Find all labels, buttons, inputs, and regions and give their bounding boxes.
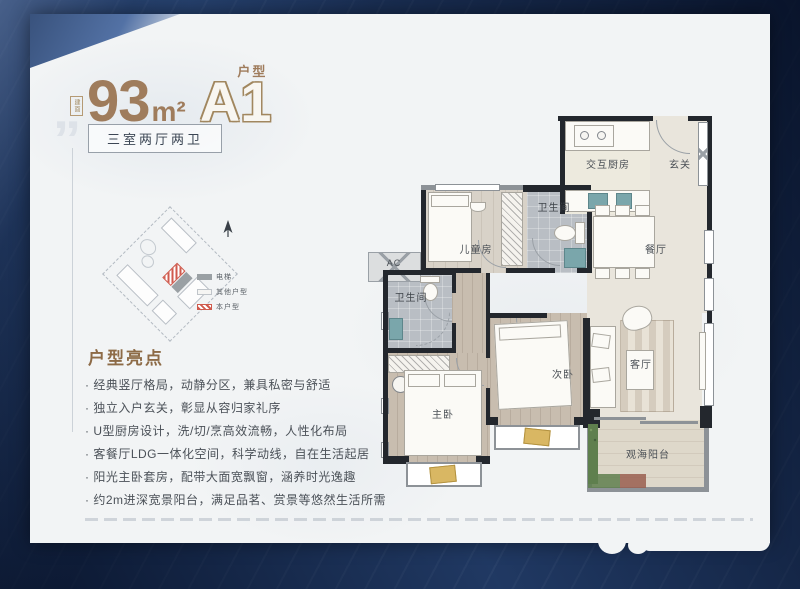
paper-edge-bubble xyxy=(650,532,664,546)
legend-label: 本户型 xyxy=(216,302,240,312)
bay-cushion xyxy=(429,465,457,485)
highlight-item: 独立入户玄关，彰显从容归家礼序 xyxy=(85,397,397,420)
site-building xyxy=(161,217,197,253)
paper-edge-bubble xyxy=(628,536,648,554)
room-label-foyer: 玄关 xyxy=(660,156,700,171)
wall xyxy=(583,318,590,409)
room-label-second: 次卧 xyxy=(546,366,580,381)
wall xyxy=(383,270,456,275)
sliding-door xyxy=(640,421,698,424)
foyer-closet xyxy=(698,122,708,186)
brochure-page: 建面 93 m² A1 户型 ” 三室两厅两卫 xyxy=(30,14,770,543)
pillow xyxy=(431,195,469,207)
room-label-balcony: 观海阳台 xyxy=(616,446,680,461)
room-label-ac: AC xyxy=(376,258,412,268)
burner-icon xyxy=(597,131,606,140)
highlights-heading: 户型亮点 xyxy=(88,344,164,369)
room-label-bath-top: 卫生间 xyxy=(528,199,580,214)
toilet-tank xyxy=(420,276,440,283)
room-label-dining: 餐厅 xyxy=(636,241,676,256)
bath-sink xyxy=(389,318,403,340)
dining-chair xyxy=(595,268,610,279)
sliding-door xyxy=(594,417,646,420)
room-label-master: 主卧 xyxy=(424,406,462,421)
wall xyxy=(527,268,555,273)
legend-label: 其他户型 xyxy=(216,287,248,297)
bath-sink xyxy=(564,248,586,268)
wall xyxy=(452,275,456,293)
highlight-item: 阳光主卧套房，配带大面宽飘窗，涵养时光逸趣 xyxy=(85,466,397,489)
sofa-pillow xyxy=(591,367,611,383)
title-block: 建面 93 m² A1 户型 xyxy=(70,60,267,126)
vertical-divider xyxy=(72,148,73,432)
window xyxy=(435,184,500,191)
wall xyxy=(707,264,712,278)
toilet-tank xyxy=(575,222,585,244)
dining-chair xyxy=(635,205,650,216)
floorplan: 交互厨房 玄关 卫生间 儿童房 餐厅 AC 卫生间 次卧 主卧 客厅 观海阳台 xyxy=(368,106,720,504)
legend-label: 电梯 xyxy=(216,272,232,282)
room-label-living: 客厅 xyxy=(622,356,660,371)
dining-chair xyxy=(615,205,630,216)
plan-suffix: 户型 xyxy=(237,61,267,80)
tv-console xyxy=(699,332,706,390)
wall xyxy=(707,311,712,323)
wall xyxy=(383,348,453,353)
legend-swatch-solid xyxy=(197,274,212,280)
highlight-item: 经典竖厅格局，动静分区，兼具私密与舒适 xyxy=(85,374,397,397)
north-arrow-icon xyxy=(222,220,234,237)
pillow xyxy=(408,374,440,387)
layout-badge: 三室两厅两卫 xyxy=(88,124,222,153)
quote-decoration: ” xyxy=(53,110,82,170)
bay-cushion xyxy=(523,428,551,447)
room-label-kids: 儿童房 xyxy=(446,241,506,256)
balcony-wall xyxy=(704,428,709,487)
window xyxy=(704,278,714,311)
wall xyxy=(577,268,592,273)
dining-chair xyxy=(615,268,630,279)
legend-item: 电梯 xyxy=(197,272,248,282)
window xyxy=(704,230,714,264)
site-building xyxy=(152,299,177,324)
burner-icon xyxy=(580,131,589,140)
page: 建面 93 m² A1 户型 ” 三室两厅两卫 xyxy=(0,0,800,589)
legend-item: 其他户型 xyxy=(197,287,248,297)
wall xyxy=(506,268,527,273)
room-label-bath-left: 卫生间 xyxy=(387,289,435,304)
pillow xyxy=(444,374,476,387)
fine-print-strip xyxy=(85,518,753,521)
dining-chair xyxy=(595,205,610,216)
highlights-list: 经典竖厅格局，动静分区，兼具私密与舒适 独立入户玄关，彰显从容归家礼序 U型厨房… xyxy=(85,374,397,512)
area-number: 93 xyxy=(87,77,150,126)
plan-code: A1 xyxy=(200,78,272,126)
sofa-pillow xyxy=(591,333,611,349)
desk xyxy=(470,202,486,212)
wall xyxy=(486,417,498,425)
site-tree xyxy=(139,253,157,271)
dining-chair xyxy=(635,268,650,279)
site-legend: 电梯 其他户型 本户型 xyxy=(197,272,248,317)
wall xyxy=(486,388,490,420)
wall xyxy=(574,417,588,425)
highlight-item: 约2m进深宽景阳台，满足品茗、赏景等悠然生活所需 xyxy=(85,489,397,512)
paper-edge-bubble xyxy=(598,528,626,554)
highlight-item: U型厨房设计，洗/切/烹高效流畅，人性化布局 xyxy=(85,420,397,443)
room-label-kitchen: 交互厨房 xyxy=(573,156,643,171)
toilet xyxy=(554,225,576,241)
corridor-floor xyxy=(452,273,490,353)
area-unit: m² xyxy=(152,98,186,126)
wall xyxy=(421,190,426,273)
wall xyxy=(700,406,712,428)
highlight-item: 客餐厅LDG一体化空间，科学动线，自在生活起居 xyxy=(85,443,397,466)
legend-swatch-outline xyxy=(197,289,212,295)
legend-item: 本户型 xyxy=(197,302,248,312)
site-building xyxy=(116,264,158,306)
legend-swatch-hatched xyxy=(197,304,212,310)
plants xyxy=(588,474,646,488)
